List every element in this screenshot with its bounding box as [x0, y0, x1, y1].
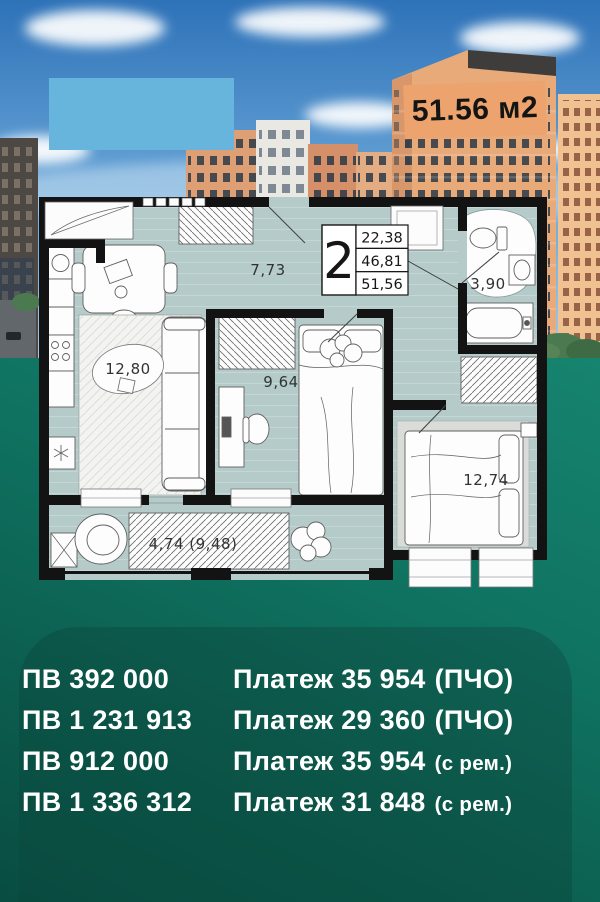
payment-type-suffix: (ПЧО)	[435, 664, 514, 695]
sink	[509, 255, 535, 285]
stamp-rooms-count: 2	[323, 232, 355, 290]
promo-page: 51.56 м2	[0, 0, 600, 902]
offer-row: ПВ 912 000 Платеж 35 954 (с рем.)	[22, 741, 574, 782]
stamp-total-area: 51,56	[361, 277, 403, 293]
floor-plan: 2 22,38 46,81 51,56 7,73 12,80 9,64 3,90…	[31, 197, 555, 592]
monthly-payment: Платеж 29 360 (ПЧО)	[233, 705, 513, 736]
monthly-payment-value: Платеж 35 954	[233, 664, 426, 695]
down-payment-value: ПВ 1 231 913	[22, 705, 233, 736]
monthly-payment-value: Платеж 31 848	[233, 787, 426, 818]
down-payment-value: ПВ 1 336 312	[22, 787, 233, 818]
monthly-payment: Платеж 31 848 (с рем.)	[233, 787, 512, 818]
corridor-closet-hatched	[461, 357, 537, 403]
bedroom-wardrobe	[219, 315, 295, 369]
offer-row: ПВ 392 000 Платеж 35 954 (ПЧО)	[22, 659, 574, 700]
offer-row: ПВ 1 231 913 Платеж 29 360 (ПЧО)	[22, 700, 574, 741]
down-payment-value: ПВ 912 000	[22, 746, 233, 777]
hall-closet-hatched	[179, 206, 253, 244]
stamp-living-area: 22,38	[361, 231, 403, 247]
room-label-kitchen-living: 12,80	[105, 360, 150, 378]
stamp-area-no-balcony: 46,81	[361, 254, 403, 270]
down-payment-value: ПВ 392 000	[22, 664, 233, 695]
room-label-balcony: 4,74 (9,48)	[149, 535, 238, 553]
bathtub	[461, 303, 533, 343]
toilet	[470, 227, 507, 250]
payment-type-suffix: (ПЧО)	[435, 705, 514, 736]
monthly-payment-value: Платеж 35 954	[233, 746, 426, 777]
room-label-bedroom: 9,64	[263, 373, 298, 391]
monthly-payment-value: Платеж 29 360	[233, 705, 426, 736]
monthly-payment: Платеж 35 954 (ПЧО)	[233, 664, 513, 695]
monthly-payment: Платеж 35 954 (с рем.)	[233, 746, 512, 777]
offer-row: ПВ 1 336 312 Платеж 31 848 (с рем.)	[22, 782, 574, 823]
payment-type-suffix: (с рем.)	[435, 793, 513, 817]
payment-type-suffix: (с рем.)	[435, 752, 513, 776]
area-badge-label: 51.56 м2	[411, 91, 538, 129]
room-label-hallway: 7,73	[250, 261, 285, 279]
offers-list: ПВ 392 000 Платеж 35 954 (ПЧО) ПВ 1 231 …	[22, 659, 574, 823]
sofa	[162, 317, 207, 491]
area-badge: 51.56 м2	[403, 81, 547, 139]
room-label-bathroom: 3,90	[470, 275, 505, 293]
room-label-bedroom2: 12,74	[463, 471, 508, 489]
logo-placeholder	[49, 78, 234, 150]
